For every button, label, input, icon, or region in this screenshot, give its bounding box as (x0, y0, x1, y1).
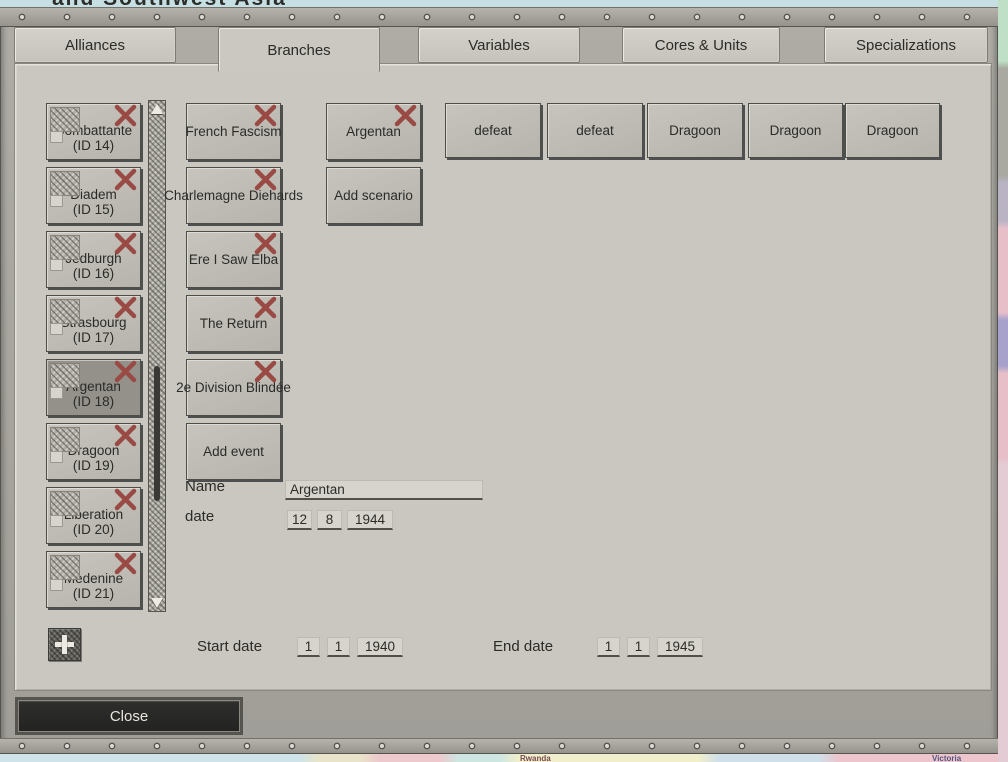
branch-texture-corner-icon (50, 195, 63, 207)
map-label-victoria: Victoria (932, 754, 961, 762)
event-button-the-return[interactable]: The Return (186, 295, 281, 352)
delete-event-icon[interactable] (253, 104, 278, 127)
delete-branch-icon[interactable] (113, 104, 138, 127)
branch-texture-corner-icon (50, 579, 63, 591)
date-month-input[interactable] (317, 510, 342, 530)
branch-item-strasbourg[interactable]: Strasbourg (ID 17) (46, 295, 141, 352)
delete-event-icon[interactable] (253, 232, 278, 255)
branch-texture-corner-icon (50, 451, 63, 463)
event-button-2e-division-blindee[interactable]: 2e Division Blindée (186, 359, 281, 416)
delete-branch-icon[interactable] (113, 424, 138, 447)
tab-label: Cores & Units (655, 37, 748, 54)
branch-texture-icon (50, 491, 80, 516)
map-label-rwanda: Rwanda (520, 754, 551, 762)
start-month-input[interactable] (327, 637, 350, 657)
outcome-label: Dragoon (770, 123, 822, 138)
branch-item-diadem[interactable]: Diadem (ID 15) (46, 167, 141, 224)
name-input[interactable] (285, 480, 483, 500)
end-date-label: End date (493, 638, 553, 655)
branch-item-dragoon[interactable]: Dragoon (ID 19) (46, 423, 141, 480)
branch-texture-icon (50, 299, 80, 324)
branch-texture-icon (50, 427, 80, 452)
scrollbar-thumb[interactable] (154, 366, 160, 501)
outcome-button-dragoon-2[interactable]: Dragoon (748, 103, 843, 158)
top-metal-bar (0, 7, 998, 27)
event-button-charlemagne-diehards[interactable]: Charlemagne Diehards (186, 167, 281, 224)
add-event-label: Add event (203, 444, 264, 459)
outcome-label: Dragoon (867, 123, 919, 138)
branch-id: (ID 18) (73, 394, 114, 409)
add-branch-button[interactable] (48, 628, 81, 661)
branch-texture-icon (50, 555, 80, 580)
date-label: date (185, 508, 214, 525)
branch-id: (ID 14) (73, 138, 114, 153)
tab-cores-units[interactable]: Cores & Units (622, 27, 780, 63)
tab-specializations[interactable]: Specializations (824, 27, 988, 63)
start-year-input[interactable] (357, 637, 403, 657)
branch-texture-corner-icon (50, 387, 63, 399)
tab-label: Alliances (65, 37, 125, 54)
delete-branch-icon[interactable] (113, 168, 138, 191)
delete-branch-icon[interactable] (113, 296, 138, 319)
delete-branch-icon[interactable] (113, 552, 138, 575)
plus-icon (62, 635, 67, 654)
close-button[interactable]: Close (18, 700, 240, 732)
branch-texture-corner-icon (50, 131, 63, 143)
tab-variables[interactable]: Variables (418, 27, 580, 63)
branch-item-jedburgh[interactable]: Jedburgh (ID 16) (46, 231, 141, 288)
delete-scenario-icon[interactable] (393, 104, 418, 127)
scroll-up-icon[interactable] (151, 104, 163, 114)
delete-branch-icon[interactable] (113, 360, 138, 383)
event-button-ere-i-saw-elba[interactable]: Ere I Saw Elba (186, 231, 281, 288)
screen: and Southwest Asia Rwanda Victoria Allia… (0, 0, 1008, 762)
branch-id: (ID 15) (73, 202, 114, 217)
event-button-french-fascism[interactable]: French Fascism (186, 103, 281, 160)
map-background-bottom: Rwanda Victoria (0, 754, 998, 762)
branch-id: (ID 21) (73, 586, 114, 601)
add-scenario-label: Add scenario (334, 188, 413, 203)
tab-label: Branches (267, 42, 330, 59)
delete-event-icon[interactable] (253, 360, 278, 383)
date-day-input[interactable] (287, 510, 312, 530)
scroll-down-icon[interactable] (151, 598, 163, 608)
end-month-input[interactable] (627, 637, 650, 657)
delete-branch-icon[interactable] (113, 488, 138, 511)
branch-item-argentan[interactable]: Argentan (ID 18) (46, 359, 141, 416)
branch-id: (ID 20) (73, 522, 114, 537)
outcome-button-defeat-2[interactable]: defeat (547, 103, 643, 158)
outcome-label: defeat (474, 123, 512, 138)
branch-texture-corner-icon (50, 323, 63, 335)
tab-label: Variables (468, 37, 529, 54)
branch-texture-corner-icon (50, 515, 63, 527)
branch-item-liberation[interactable]: Liberation (ID 20) (46, 487, 141, 544)
branch-id: (ID 19) (73, 458, 114, 473)
outcome-button-dragoon-3[interactable]: Dragoon (845, 103, 940, 158)
outcome-button-dragoon-1[interactable]: Dragoon (647, 103, 743, 158)
map-background-right (998, 0, 1008, 762)
name-label: Name (185, 478, 225, 495)
delete-branch-icon[interactable] (113, 232, 138, 255)
tab-alliances[interactable]: Alliances (14, 27, 176, 63)
branch-item-medenine[interactable]: Medenine (ID 21) (46, 551, 141, 608)
outcome-label: Dragoon (669, 123, 721, 138)
start-day-input[interactable] (297, 637, 320, 657)
delete-event-icon[interactable] (253, 296, 278, 319)
branch-texture-icon (50, 107, 80, 132)
bottom-metal-bar (0, 738, 998, 754)
branch-list-scrollbar[interactable] (148, 100, 166, 612)
add-event-button[interactable]: Add event (186, 423, 281, 480)
outcome-label: defeat (576, 123, 614, 138)
branch-texture-icon (50, 171, 80, 196)
branch-item-combattante[interactable]: Combattante (ID 14) (46, 103, 141, 160)
end-year-input[interactable] (657, 637, 703, 657)
end-day-input[interactable] (597, 637, 620, 657)
date-year-input[interactable] (347, 510, 393, 530)
tab-label: Specializations (856, 37, 956, 54)
branch-texture-icon (50, 235, 80, 260)
event-label: Charlemagne Diehards (164, 188, 303, 203)
add-scenario-button[interactable]: Add scenario (326, 167, 421, 224)
tab-branches[interactable]: Branches (218, 27, 380, 72)
branch-id: (ID 16) (73, 266, 114, 281)
outcome-button-defeat-1[interactable]: defeat (445, 103, 541, 158)
branch-texture-icon (50, 363, 80, 388)
scenario-button-argentan[interactable]: Argentan (326, 103, 421, 160)
branch-id: (ID 17) (73, 330, 114, 345)
branch-texture-corner-icon (50, 259, 63, 271)
start-date-label: Start date (197, 638, 262, 655)
delete-event-icon[interactable] (253, 168, 278, 191)
close-label: Close (110, 708, 148, 725)
